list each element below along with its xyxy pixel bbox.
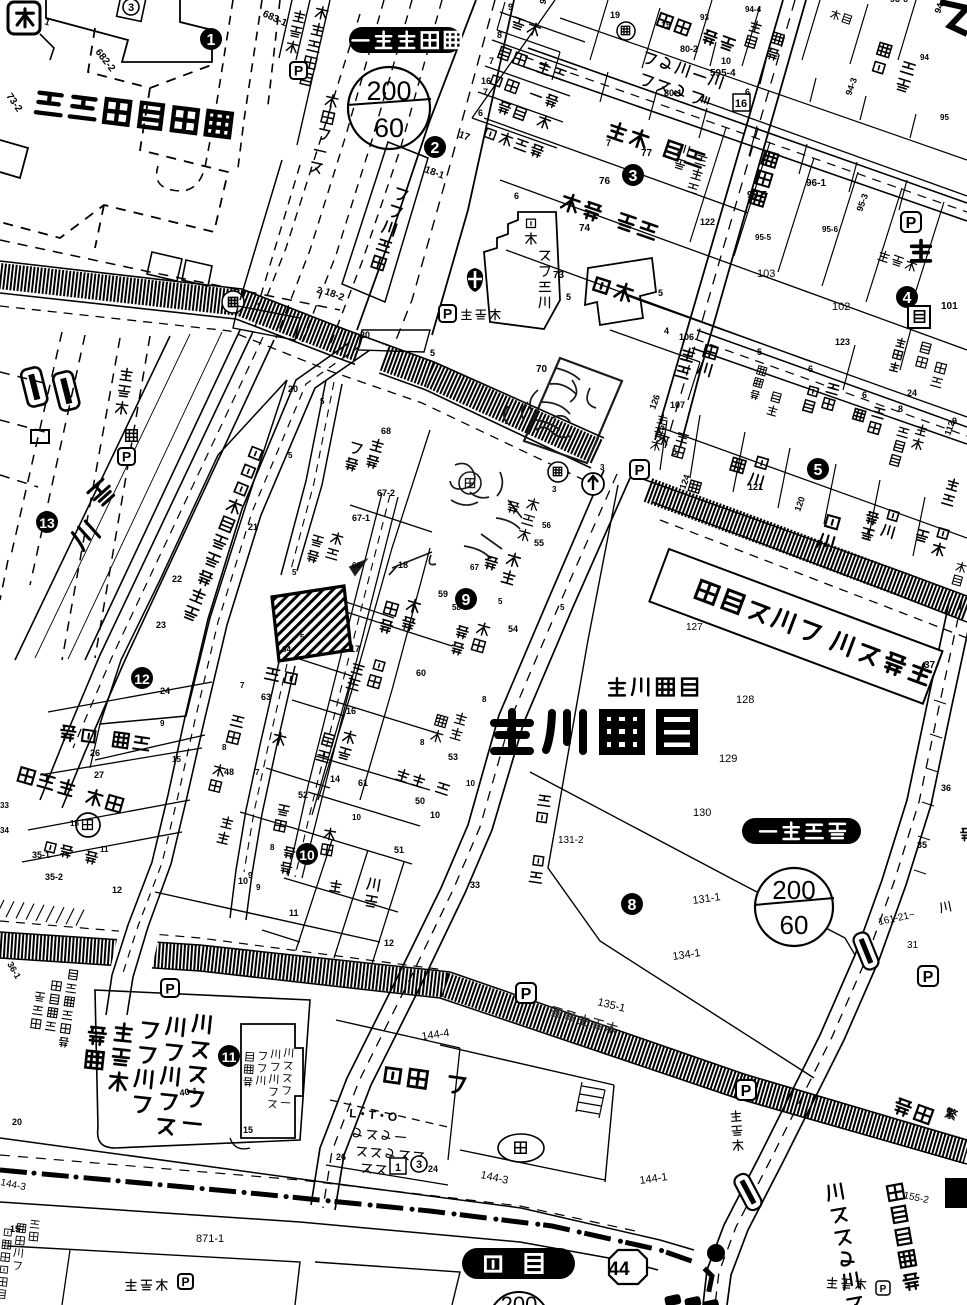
svg-text:20: 20: [360, 330, 370, 340]
svg-text:4: 4: [664, 326, 669, 336]
svg-text:P: P: [741, 1083, 752, 1100]
svg-text:P: P: [521, 986, 532, 1003]
svg-text:11: 11: [222, 1049, 237, 1065]
svg-text:10: 10: [238, 876, 248, 886]
svg-text:5: 5: [430, 348, 435, 358]
svg-text:3: 3: [416, 1159, 422, 1171]
svg-text:36: 36: [941, 783, 951, 793]
svg-text:16: 16: [481, 76, 491, 86]
svg-text:95: 95: [940, 113, 949, 122]
svg-text:123: 123: [835, 337, 850, 347]
svg-text:P: P: [906, 215, 917, 232]
svg-text:P: P: [181, 1275, 189, 1289]
svg-text:P: P: [634, 462, 644, 479]
svg-text:12: 12: [112, 885, 122, 895]
svg-text:20: 20: [288, 384, 298, 394]
svg-text:12: 12: [384, 938, 394, 948]
svg-text:7: 7: [240, 681, 245, 690]
svg-text:64: 64: [282, 645, 291, 654]
svg-text:131-2: 131-2: [558, 835, 584, 846]
svg-text:66: 66: [352, 561, 361, 570]
svg-text:7: 7: [606, 138, 611, 148]
svg-text:24: 24: [428, 1164, 438, 1174]
svg-text:11: 11: [289, 908, 299, 918]
svg-text:74: 74: [579, 223, 591, 234]
svg-text:1: 1: [207, 32, 216, 49]
svg-text:21: 21: [248, 522, 258, 532]
svg-text:20: 20: [12, 1117, 22, 1127]
svg-text:5: 5: [560, 603, 565, 612]
svg-text:2: 2: [431, 140, 440, 157]
svg-text:P: P: [294, 63, 303, 79]
svg-text:27: 27: [94, 770, 104, 780]
svg-text:6: 6: [745, 87, 750, 97]
svg-text:67-1: 67-1: [352, 513, 370, 523]
svg-text:5: 5: [672, 447, 677, 457]
svg-text:61: 61: [358, 778, 368, 788]
svg-text:P: P: [443, 306, 452, 322]
svg-text:18: 18: [398, 560, 408, 570]
svg-text:70: 70: [536, 364, 548, 375]
svg-text:8: 8: [270, 843, 275, 852]
svg-text:5: 5: [292, 568, 297, 577]
svg-text:95-5: 95-5: [755, 233, 772, 242]
svg-text:60: 60: [374, 113, 404, 143]
svg-text:95-6: 95-6: [822, 225, 839, 234]
svg-text:19: 19: [661, 20, 671, 30]
svg-text:56: 56: [542, 521, 551, 530]
svg-text:77: 77: [641, 148, 653, 159]
svg-text:5: 5: [658, 288, 663, 298]
svg-text:50: 50: [415, 796, 425, 806]
svg-text:9: 9: [248, 871, 253, 880]
svg-text:22: 22: [172, 574, 182, 584]
svg-text:52: 52: [298, 790, 308, 800]
svg-text:76: 76: [599, 176, 611, 187]
svg-text:9: 9: [508, 2, 513, 12]
svg-text:16: 16: [735, 98, 747, 110]
svg-text:871-1: 871-1: [196, 1233, 224, 1245]
svg-text:26: 26: [90, 748, 100, 758]
svg-text:127: 127: [686, 622, 703, 633]
svg-text:128: 128: [736, 694, 754, 706]
svg-text:101: 101: [941, 301, 958, 312]
svg-text:15: 15: [70, 819, 79, 828]
svg-text:31: 31: [907, 940, 919, 951]
svg-text:5: 5: [757, 347, 762, 357]
svg-text:122: 122: [700, 217, 715, 227]
svg-text:7: 7: [489, 56, 494, 66]
svg-text:107: 107: [670, 400, 685, 410]
svg-text:10: 10: [352, 813, 361, 822]
svg-text:200: 200: [366, 76, 411, 106]
svg-text:9: 9: [256, 883, 261, 892]
svg-text:3: 3: [552, 485, 557, 494]
svg-text:35-1: 35-1: [32, 850, 50, 860]
svg-text:5: 5: [814, 462, 823, 479]
svg-text:33: 33: [470, 880, 480, 890]
svg-text:10: 10: [466, 779, 475, 788]
svg-text:5: 5: [300, 633, 305, 642]
svg-text:67: 67: [470, 563, 479, 572]
svg-text:9: 9: [160, 719, 165, 728]
svg-text:130: 130: [693, 807, 711, 819]
svg-text:16: 16: [346, 706, 356, 716]
svg-text:5: 5: [498, 597, 503, 606]
svg-text:P: P: [880, 1284, 887, 1295]
svg-text:6: 6: [808, 364, 813, 374]
svg-text:3: 3: [629, 168, 638, 185]
svg-text:60: 60: [416, 668, 426, 678]
svg-text:P: P: [923, 969, 934, 986]
svg-text:1: 1: [395, 1162, 401, 1174]
svg-text:9: 9: [952, 416, 957, 426]
svg-text:93: 93: [700, 13, 709, 22]
svg-text:23: 23: [156, 620, 166, 630]
svg-text:200: 200: [501, 1292, 538, 1305]
svg-text:595-4: 595-4: [710, 68, 736, 79]
svg-text:7: 7: [483, 87, 488, 97]
svg-text:60: 60: [780, 910, 809, 940]
svg-text:59: 59: [438, 589, 448, 599]
svg-text:10: 10: [721, 56, 731, 66]
svg-text:73: 73: [553, 270, 565, 281]
svg-text:19: 19: [610, 10, 620, 20]
svg-text:6: 6: [862, 390, 867, 400]
svg-text:129: 129: [719, 753, 737, 765]
svg-text:102: 102: [832, 301, 850, 313]
svg-text:94-4: 94-4: [745, 5, 762, 14]
svg-text:121: 121: [748, 482, 763, 492]
svg-text:53: 53: [448, 752, 458, 762]
svg-text:58: 58: [452, 603, 461, 612]
svg-text:63: 63: [261, 692, 271, 702]
svg-text:94: 94: [920, 53, 929, 62]
svg-text:96-1: 96-1: [806, 178, 826, 189]
svg-text:P: P: [165, 980, 174, 996]
svg-text:55: 55: [534, 538, 544, 548]
svg-text:80-2: 80-2: [680, 44, 698, 54]
svg-text:106: 106: [679, 332, 694, 342]
svg-text:24: 24: [907, 388, 917, 398]
svg-text:5: 5: [566, 292, 571, 302]
svg-text:103: 103: [757, 268, 775, 280]
svg-text:44: 44: [608, 1259, 630, 1280]
svg-text:35: 35: [917, 840, 927, 850]
svg-text:5: 5: [288, 451, 293, 460]
svg-text:54: 54: [508, 624, 518, 634]
svg-text:24: 24: [160, 686, 170, 696]
svg-text:11: 11: [100, 845, 109, 854]
svg-text:8: 8: [898, 404, 903, 414]
svg-text:7: 7: [255, 768, 260, 777]
svg-text:15: 15: [172, 755, 181, 764]
svg-text:10: 10: [299, 847, 315, 863]
svg-text:93-6: 93-6: [890, 0, 908, 4]
svg-text:12: 12: [134, 671, 150, 687]
svg-text:6: 6: [514, 191, 519, 201]
svg-text:33: 33: [0, 801, 9, 810]
svg-text:5: 5: [320, 397, 325, 406]
svg-text:15: 15: [243, 1125, 253, 1135]
svg-text:14: 14: [330, 774, 340, 784]
svg-text:P: P: [122, 449, 131, 465]
svg-text:10: 10: [430, 810, 440, 820]
svg-text:3: 3: [600, 463, 605, 472]
svg-text:8: 8: [628, 897, 637, 914]
svg-text:34: 34: [0, 826, 9, 835]
svg-text:6: 6: [478, 108, 483, 118]
svg-text:80-1: 80-1: [664, 88, 682, 98]
svg-text:37: 37: [924, 660, 936, 671]
svg-text:51: 51: [394, 845, 404, 855]
svg-text:48: 48: [224, 767, 234, 777]
svg-text:8: 8: [222, 743, 227, 752]
svg-text:8: 8: [420, 738, 425, 747]
svg-text:4: 4: [903, 290, 912, 307]
svg-text:35-2: 35-2: [45, 872, 63, 882]
svg-text:3: 3: [128, 2, 134, 14]
svg-text:13: 13: [39, 515, 55, 531]
svg-text:68: 68: [381, 426, 391, 436]
svg-text:9: 9: [462, 592, 471, 609]
svg-text:200: 200: [772, 875, 815, 905]
svg-text:8: 8: [482, 695, 487, 704]
svg-text:26: 26: [336, 1152, 346, 1162]
svg-text:67-2: 67-2: [377, 488, 395, 498]
